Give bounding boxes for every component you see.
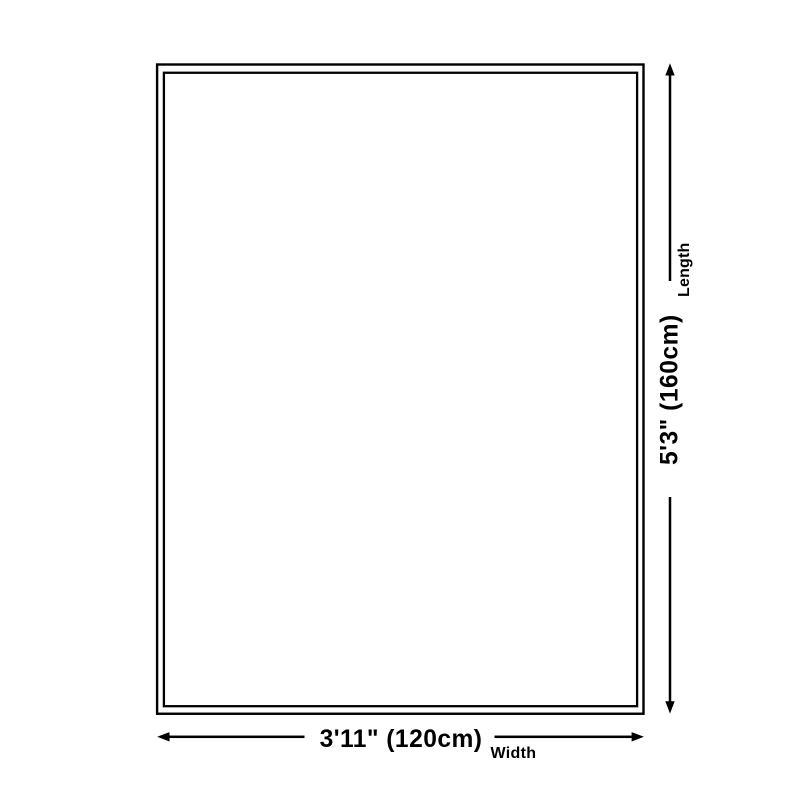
svg-text:3'11" (120cm): 3'11" (120cm) (320, 726, 483, 753)
svg-text:5'3" (160cm): 5'3" (160cm) (657, 314, 684, 465)
svg-text:Width: Width (491, 745, 537, 762)
svg-text:Length: Length (676, 242, 693, 297)
